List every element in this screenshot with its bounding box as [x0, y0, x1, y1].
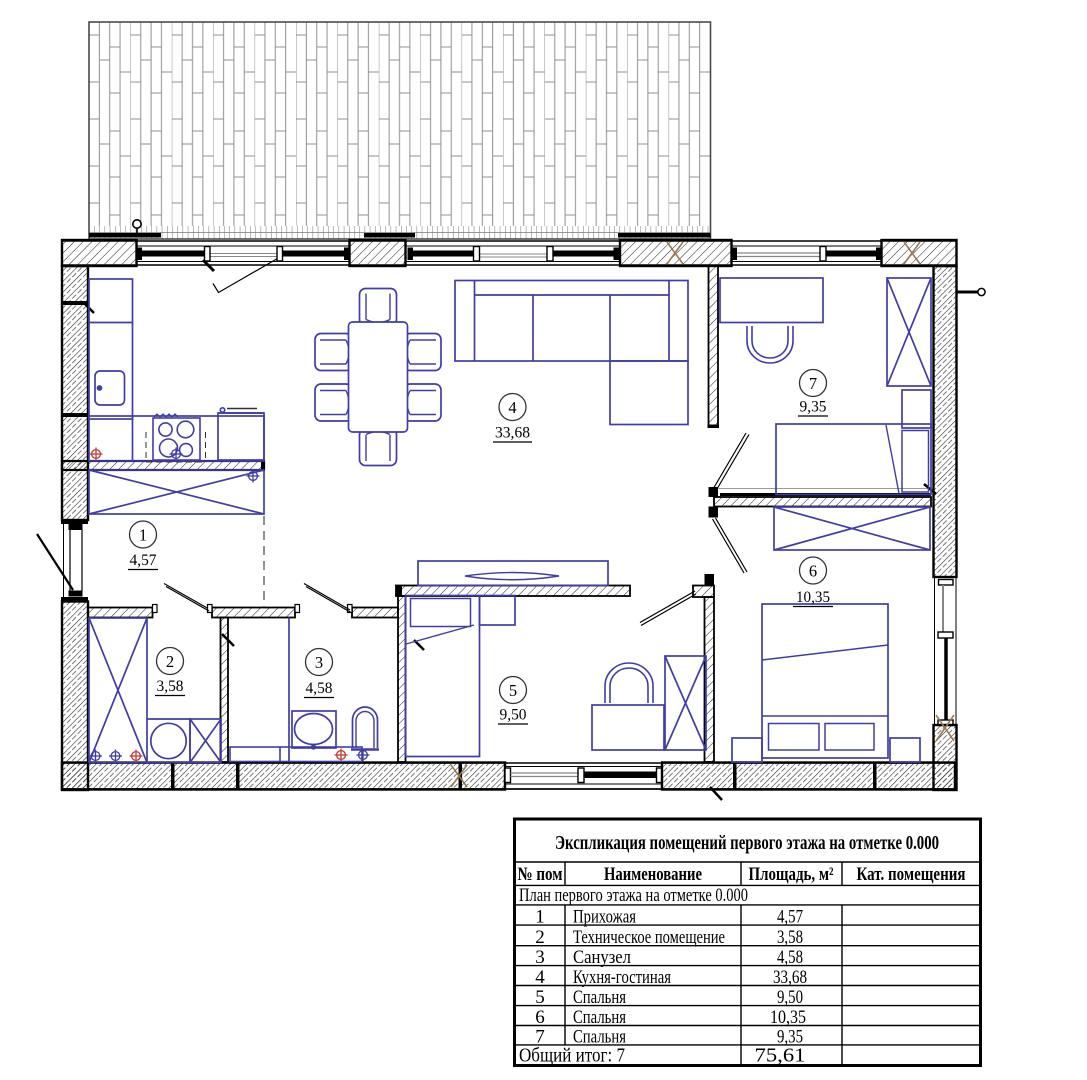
svg-text:Кухня-гостиная: Кухня-гостиная: [573, 967, 671, 988]
svg-text:1: 1: [535, 906, 545, 927]
svg-text:Экспликация помещений первого: Экспликация помещений первого этажа на о…: [555, 833, 939, 854]
svg-text:7: 7: [809, 374, 817, 393]
svg-text:3,58: 3,58: [777, 927, 803, 948]
svg-text:9,50: 9,50: [777, 987, 803, 1008]
svg-text:9,50: 9,50: [500, 707, 527, 724]
svg-text:Кат. помещения: Кат. помещения: [857, 864, 966, 885]
svg-text:33,68: 33,68: [773, 967, 807, 988]
svg-text:9,35: 9,35: [800, 399, 827, 416]
svg-text:1: 1: [139, 526, 147, 545]
svg-text:Прихожая: Прихожая: [573, 906, 636, 927]
svg-text:Техническое помещение: Техническое помещение: [573, 927, 725, 948]
svg-text:4,58: 4,58: [777, 947, 803, 968]
svg-text:Площадь, м²: Площадь, м²: [749, 864, 834, 885]
svg-text:2: 2: [166, 652, 174, 671]
svg-text:№ пом: № пом: [518, 864, 563, 885]
svg-text:4,57: 4,57: [130, 552, 157, 569]
svg-text:4: 4: [535, 967, 545, 988]
svg-text:3: 3: [535, 947, 545, 968]
svg-text:План первого этажа на отметке: План первого этажа на отметке 0.000: [519, 885, 748, 906]
svg-text:5: 5: [535, 987, 545, 1008]
svg-text:10,35: 10,35: [770, 1007, 806, 1028]
svg-text:3: 3: [315, 653, 323, 672]
svg-text:10,35: 10,35: [796, 589, 830, 606]
svg-text:4,58: 4,58: [306, 680, 333, 697]
svg-text:3,58: 3,58: [157, 678, 184, 695]
svg-text:Спальня: Спальня: [573, 1007, 626, 1028]
svg-text:Общий итог: 7: Общий итог: 7: [519, 1045, 625, 1067]
svg-text:4,57: 4,57: [777, 906, 803, 927]
svg-text:2: 2: [535, 927, 545, 948]
svg-text:6: 6: [809, 562, 817, 581]
svg-text:Спальня: Спальня: [573, 987, 626, 1008]
svg-text:5: 5: [509, 681, 517, 700]
svg-text:4: 4: [508, 398, 516, 417]
svg-text:Наименование: Наименование: [604, 864, 702, 885]
svg-text:Санузел: Санузел: [573, 947, 631, 968]
svg-text:75,61: 75,61: [755, 1045, 806, 1067]
svg-text:33,68: 33,68: [495, 425, 530, 442]
svg-text:6: 6: [535, 1007, 545, 1028]
